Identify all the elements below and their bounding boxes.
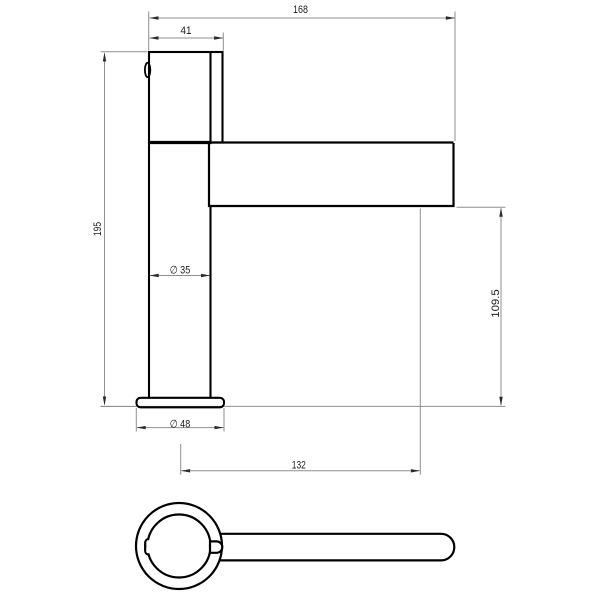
svg-text:132: 132 (292, 460, 306, 472)
svg-text:41: 41 (181, 25, 192, 37)
svg-text:109.5: 109.5 (490, 289, 502, 318)
svg-text:∅ 35: ∅ 35 (170, 265, 191, 277)
svg-text:∅ 48: ∅ 48 (170, 418, 191, 430)
svg-text:168: 168 (293, 4, 308, 16)
svg-text:195: 195 (92, 222, 104, 236)
